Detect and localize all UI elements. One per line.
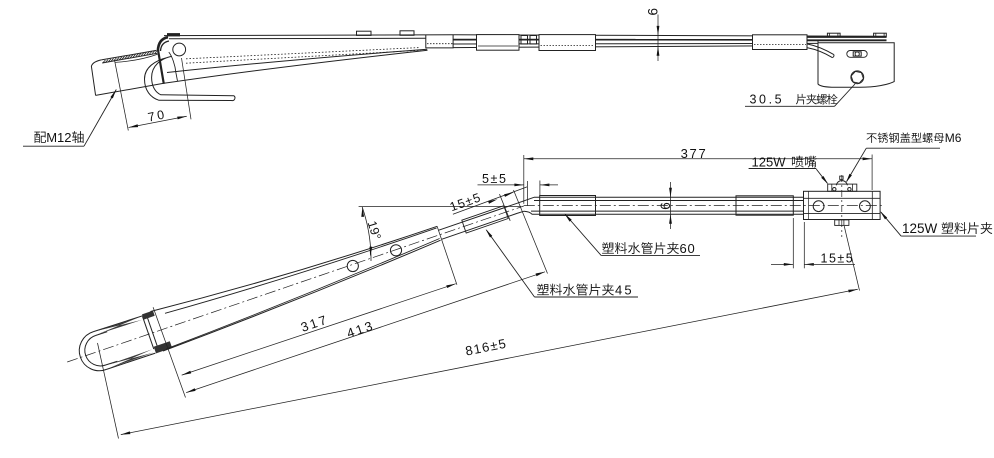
svg-text:30.5: 30.5 [750, 93, 785, 107]
svg-text:45: 45 [615, 283, 634, 298]
svg-text:125W: 125W [752, 155, 787, 170]
svg-text:60: 60 [680, 241, 696, 256]
svg-text:5±5: 5±5 [482, 172, 508, 186]
svg-text:377: 377 [681, 146, 708, 161]
svg-text:125W: 125W [902, 221, 938, 236]
svg-text:M6: M6 [945, 131, 962, 145]
svg-text:6: 6 [658, 202, 673, 210]
svg-text:6: 6 [645, 8, 660, 16]
svg-text:15±5: 15±5 [821, 252, 855, 266]
svg-text:M12: M12 [46, 130, 71, 145]
